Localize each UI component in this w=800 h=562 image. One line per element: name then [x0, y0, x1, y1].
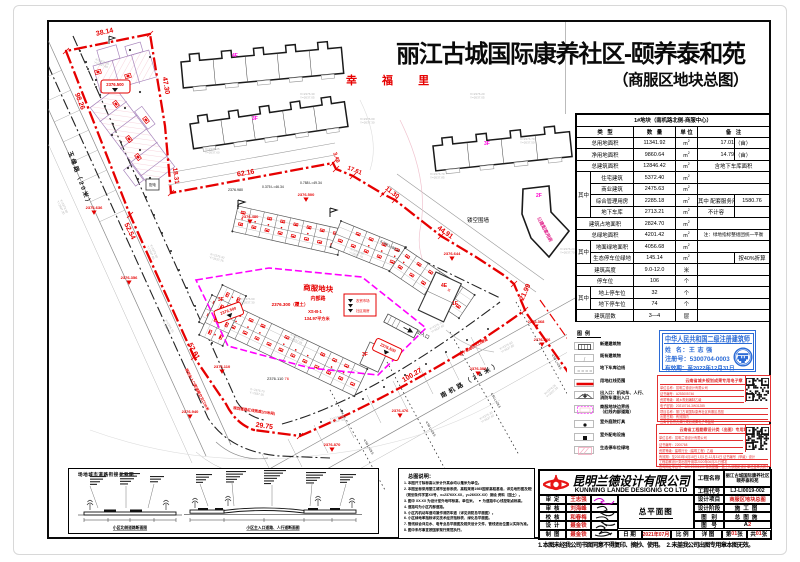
svg-text:2376.500: 2376.500 — [106, 82, 124, 87]
svg-text:配电: 配电 — [149, 182, 156, 187]
svg-text:商服地块: 商服地块 — [303, 282, 334, 294]
svg-text:2376.480: 2376.480 — [242, 214, 259, 219]
svg-text:X=2376.60Y=2637.60: X=2376.60Y=2637.60 — [329, 414, 345, 424]
svg-text:小区主入口道路、人行道断面图: 小区主入口道路、人行道断面图 — [245, 525, 299, 530]
svg-text:4.50 L=28.5: 4.50 L=28.5 — [490, 392, 502, 409]
svg-text:38.14: 38.14 — [95, 27, 114, 38]
svg-text:2376.110 76: 2376.110 76 — [267, 376, 290, 381]
svg-text:18.31: 18.31 — [171, 167, 180, 184]
svg-text:2376.476: 2376.476 — [392, 408, 409, 413]
svg-text:社区用房: 社区用房 — [356, 308, 370, 313]
svg-text:X=2376.75Y=2637.50: X=2376.75Y=2637.50 — [161, 319, 175, 336]
svg-text:2376.300（覆土）: 2376.300（覆土） — [272, 301, 309, 308]
svg-text:134.97平方米: 134.97平方米 — [304, 315, 330, 322]
svg-text:17.61: 17.61 — [346, 165, 363, 176]
svg-text:内部路: 内部路 — [310, 295, 326, 302]
svg-text:X=2376.00Y=2637.30: X=2376.00Y=2637.30 — [360, 117, 375, 124]
svg-text:3F: 3F — [252, 116, 258, 122]
svg-text:2376.366: 2376.366 — [534, 337, 551, 342]
svg-text:47.30: 47.30 — [161, 76, 171, 95]
svg-text:/: / — [584, 358, 586, 364]
svg-text:3F: 3F — [362, 352, 368, 358]
svg-text:2376.980: 2376.980 — [228, 188, 243, 192]
svg-text:X=2376.20Y=2637.05: X=2376.20Y=2637.05 — [470, 92, 485, 99]
svg-text:4E: 4E — [441, 283, 448, 289]
svg-text:X=2376.70Y=2637.85: X=2376.70Y=2637.85 — [430, 172, 445, 179]
svg-text:2376.636: 2376.636 — [86, 205, 103, 210]
svg-text:2F: 2F — [536, 193, 542, 199]
svg-text:农贸市场: 农贸市场 — [356, 298, 370, 303]
svg-text:3F: 3F — [218, 297, 224, 303]
svg-text:X=2376.20Y=2637.70: X=2376.20Y=2637.70 — [560, 247, 575, 254]
svg-text:2376.940: 2376.940 — [182, 409, 199, 414]
svg-text:2376.356: 2376.356 — [121, 275, 138, 280]
svg-text:2376.368: 2376.368 — [528, 319, 545, 324]
svg-text:玉缘路（20米）: 玉缘路（20米） — [66, 150, 94, 208]
svg-text:1F: 1F — [452, 301, 458, 307]
svg-text:0.788 L=49.34: 0.788 L=49.34 — [300, 181, 322, 185]
svg-text:X=2376.60Y=2637.20: X=2376.60Y=2637.20 — [56, 199, 69, 216]
svg-text:2376.870: 2376.870 — [324, 442, 341, 447]
svg-text:X=2376.30Y=2637.60: X=2376.30Y=2637.60 — [479, 410, 496, 424]
svg-text:规划道路红线宽度(20米段): 规划道路红线宽度(20米段) — [233, 405, 276, 416]
svg-text:2376.644: 2376.644 — [444, 251, 461, 256]
svg-text:X=2376.60Y=2637.30: X=2376.60Y=2637.30 — [240, 297, 255, 304]
svg-text:0.375 L=46.34: 0.375 L=46.34 — [262, 185, 284, 189]
svg-text:2376.110: 2376.110 — [214, 364, 231, 369]
svg-text:X=2376.50Y=2637.80: X=2376.50Y=2637.80 — [499, 340, 516, 354]
svg-text:X=2376.70Y=2637.60: X=2376.70Y=2637.60 — [429, 320, 446, 334]
svg-text:幸 福 里: 幸 福 里 — [346, 73, 440, 87]
svg-text:52.54: 52.54 — [122, 222, 136, 241]
svg-text:X=2376.05Y=2637.35: X=2376.05Y=2637.35 — [543, 383, 559, 398]
svg-text:2376.300: 2376.300 — [470, 366, 487, 371]
svg-text:2376.500: 2376.500 — [298, 192, 315, 197]
svg-text:X=2376.70Y=2637.50: X=2376.70Y=2637.50 — [520, 137, 535, 144]
svg-text:镂空围墙: 镂空围墙 — [467, 216, 490, 224]
svg-text:3F: 3F — [484, 141, 490, 147]
svg-text:X=2376.30Y=2637.05: X=2376.30Y=2637.05 — [300, 92, 315, 99]
svg-text:XS-B-1: XS-B-1 — [308, 309, 322, 314]
svg-text:21.99: 21.99 — [519, 283, 533, 302]
svg-text:X=2376.25Y=2637.60: X=2376.25Y=2637.60 — [205, 147, 220, 154]
svg-text:4F: 4F — [232, 53, 238, 59]
svg-text:小区北侧道路断面图: 小区北侧道路断面图 — [112, 525, 147, 530]
svg-text:X=2376.30Y=2637.75: X=2376.30Y=2637.75 — [209, 252, 225, 263]
svg-text:X=2376.70Y=2637.30: X=2376.70Y=2637.30 — [249, 387, 265, 397]
